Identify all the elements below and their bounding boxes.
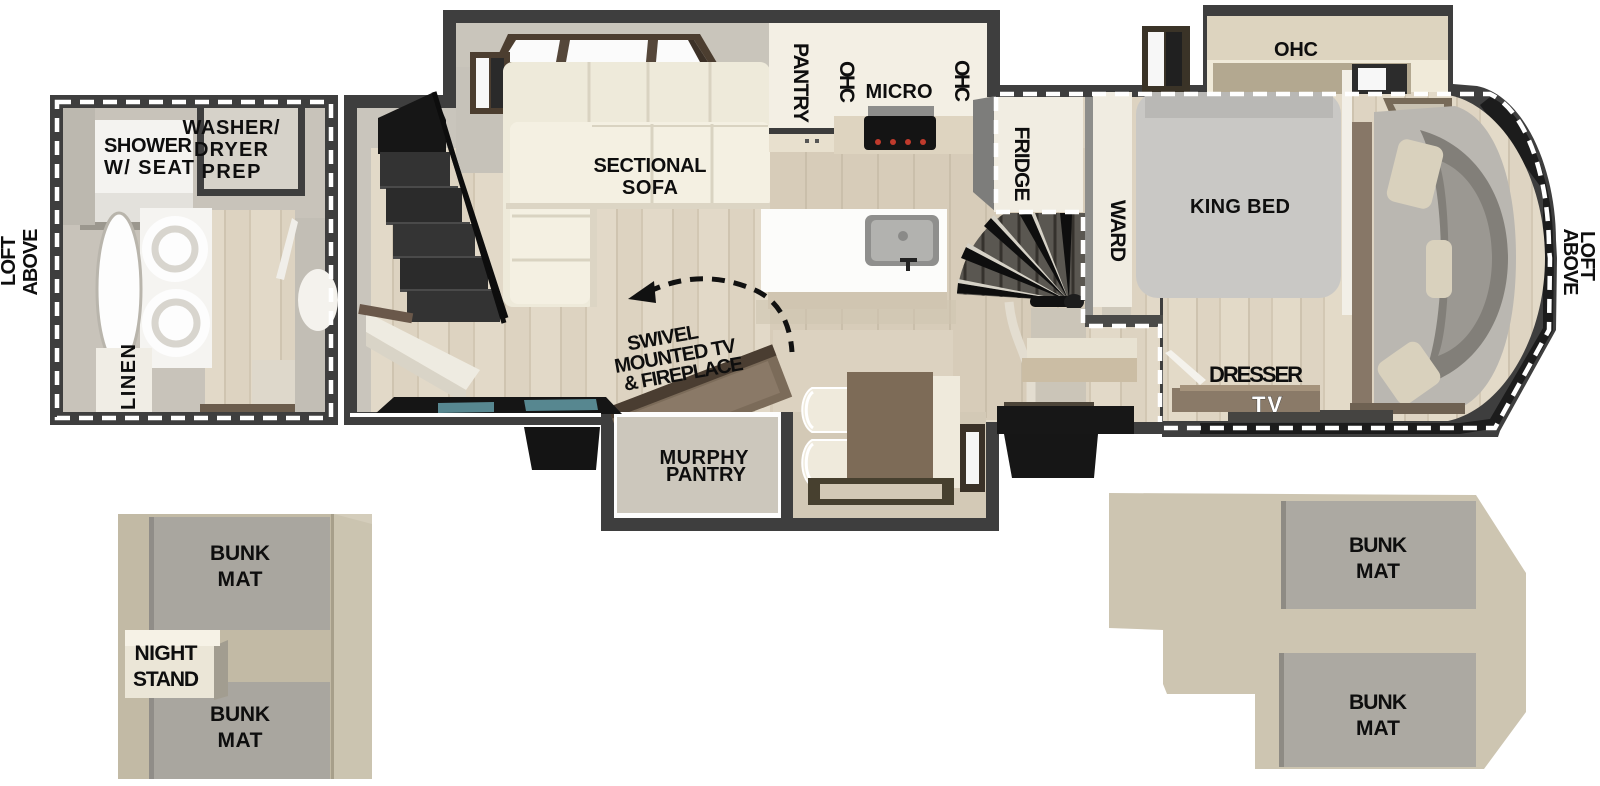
svg-text:ABOVE: ABOVE: [20, 229, 42, 296]
svg-text:ABOVE: ABOVE: [1559, 229, 1581, 296]
svg-text:SHOWER: SHOWER: [104, 135, 193, 157]
svg-text:OHC: OHC: [835, 61, 858, 103]
svg-text:PANTRY: PANTRY: [666, 464, 747, 486]
svg-text:LOFT: LOFT: [0, 236, 20, 286]
svg-text:BUNK: BUNK: [1349, 691, 1407, 714]
svg-text:STAND: STAND: [133, 668, 199, 691]
svg-text:NIGHT: NIGHT: [135, 642, 198, 665]
svg-text:OHC: OHC: [950, 60, 973, 102]
svg-text:BUNK: BUNK: [1349, 534, 1407, 557]
svg-text:SOFA: SOFA: [622, 177, 678, 199]
svg-text:MAT: MAT: [218, 568, 263, 591]
svg-text:MICRO: MICRO: [866, 81, 933, 103]
svg-text:BUNK: BUNK: [210, 703, 270, 726]
svg-text:MAT: MAT: [1356, 717, 1400, 740]
svg-text:PANTRY: PANTRY: [789, 43, 812, 123]
svg-text:FRIDGE: FRIDGE: [1010, 127, 1033, 202]
svg-text:MAT: MAT: [218, 729, 263, 752]
svg-text:WARD: WARD: [1106, 200, 1129, 262]
svg-text:MAT: MAT: [1356, 560, 1400, 583]
svg-text:TV: TV: [1252, 392, 1282, 417]
svg-text:KING BED: KING BED: [1190, 196, 1290, 218]
svg-text:OHC: OHC: [1274, 39, 1318, 61]
svg-text:DRYER: DRYER: [194, 139, 269, 161]
svg-text:DRESSER: DRESSER: [1209, 362, 1303, 387]
svg-text:WASHER/: WASHER/: [183, 117, 280, 139]
svg-text:BUNK: BUNK: [210, 542, 270, 565]
svg-text:LINEN: LINEN: [118, 344, 140, 410]
svg-text:SECTIONAL: SECTIONAL: [594, 155, 707, 177]
